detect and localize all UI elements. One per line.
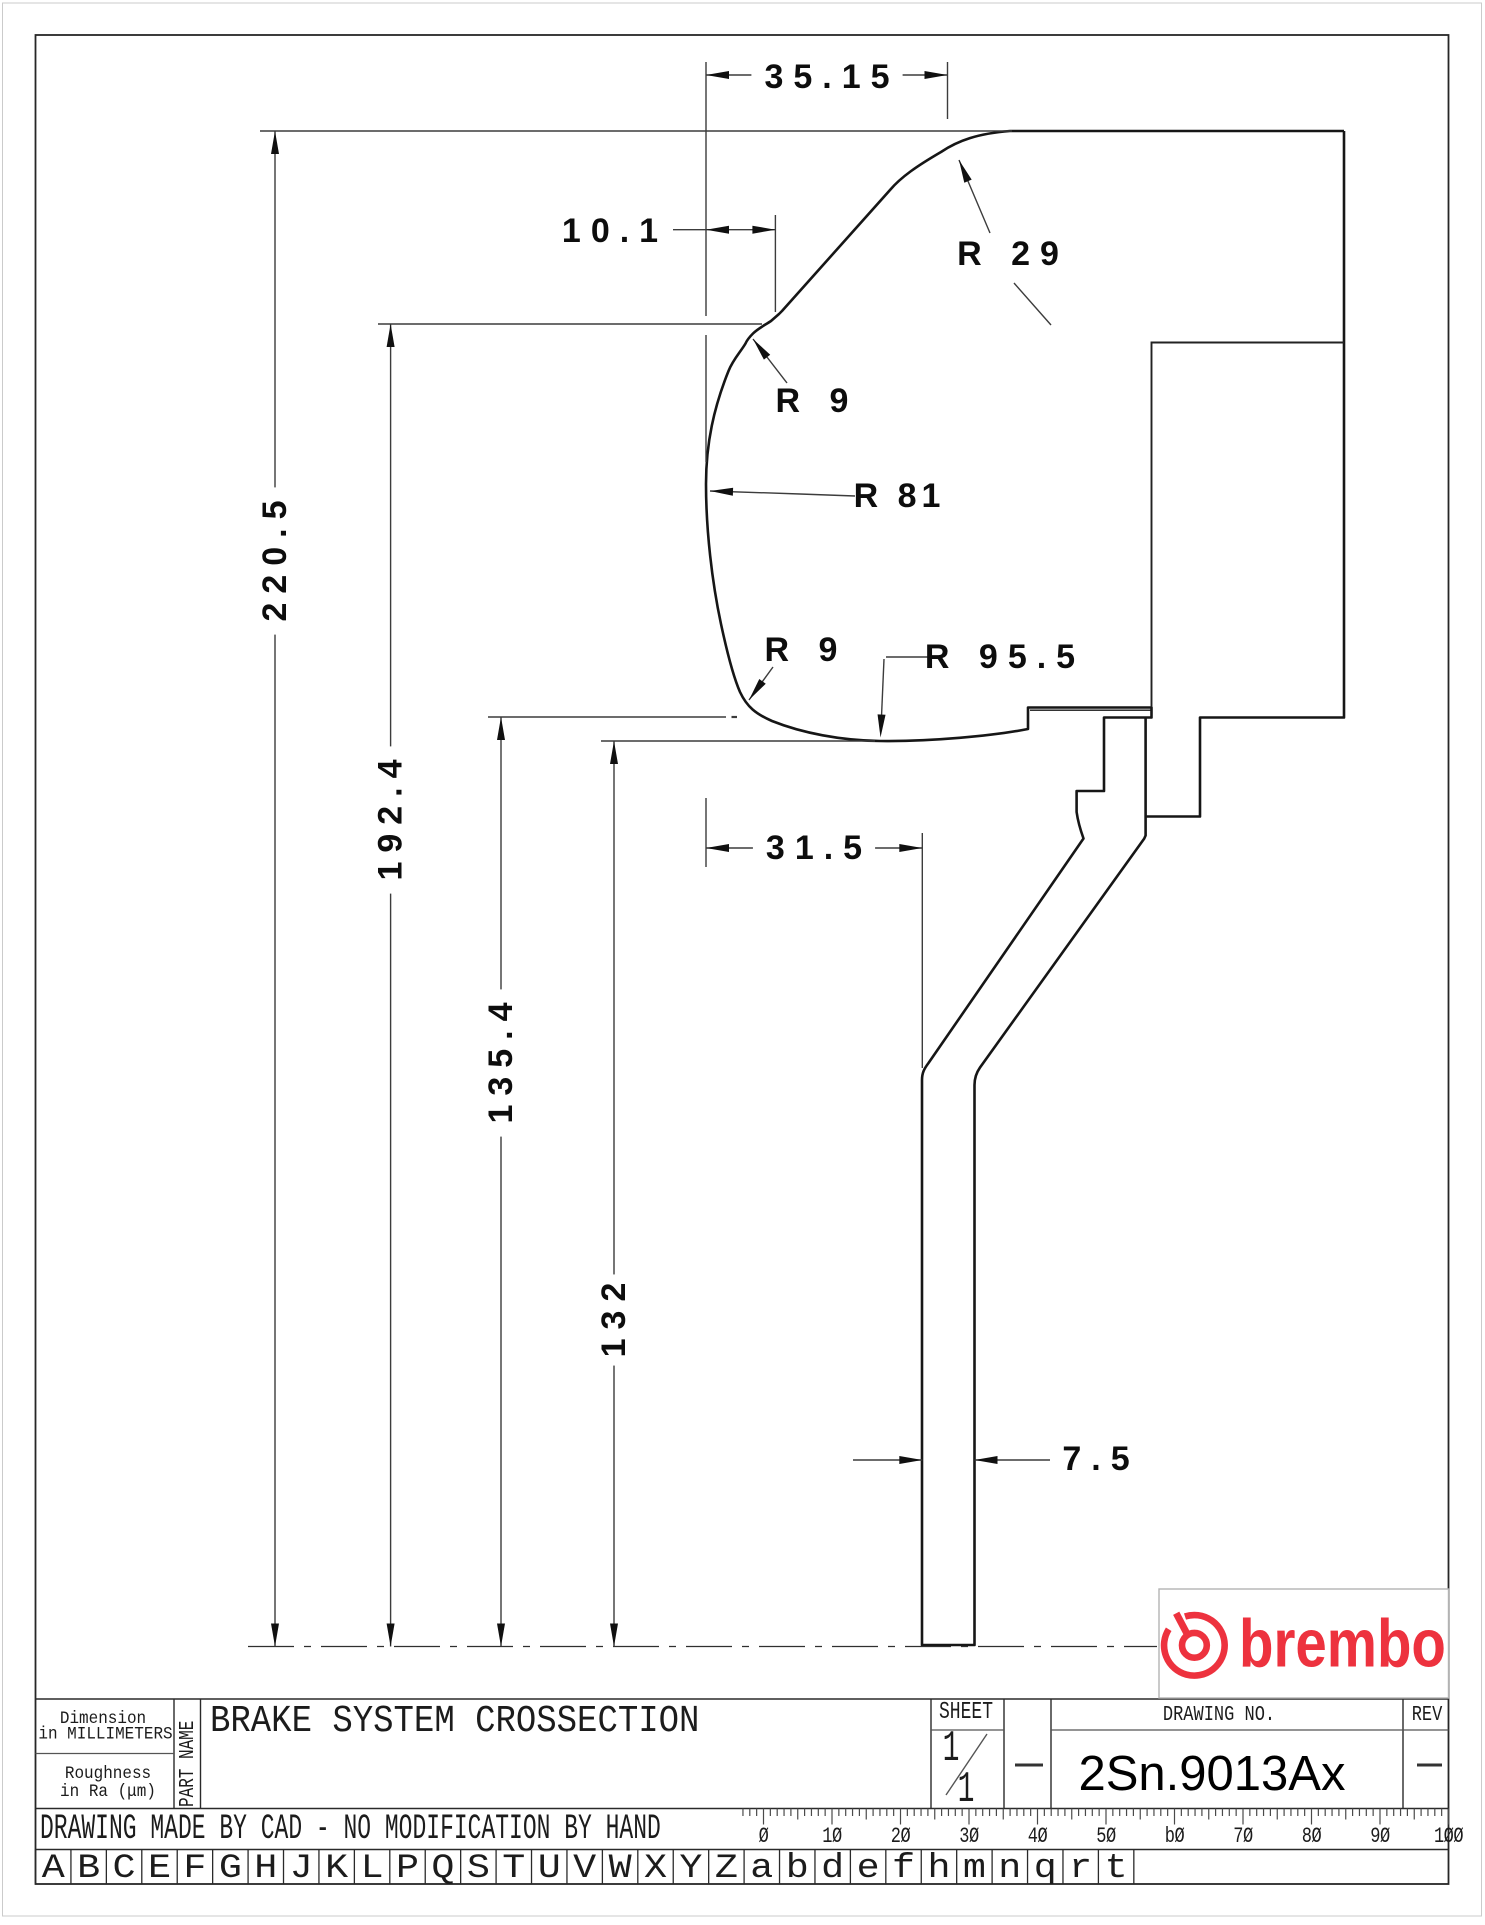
- svg-text:q: q: [1034, 1849, 1057, 1887]
- svg-text:1ØØ: 1ØØ: [1434, 1824, 1464, 1849]
- svg-text:Ø: Ø: [759, 1824, 769, 1849]
- svg-text:S: S: [467, 1849, 490, 1887]
- svg-text:t: t: [1105, 1849, 1128, 1887]
- svg-text:132: 132: [595, 1274, 633, 1358]
- svg-text:f: f: [892, 1849, 915, 1887]
- svg-text:X: X: [644, 1849, 667, 1887]
- svg-text:R 81: R 81: [854, 477, 946, 515]
- svg-text:r: r: [1069, 1849, 1092, 1887]
- svg-text:brembo: brembo: [1239, 1606, 1446, 1682]
- svg-text:8Ø: 8Ø: [1302, 1824, 1322, 1849]
- svg-text:1: 1: [958, 1765, 975, 1814]
- svg-text:SHEET: SHEET: [939, 1699, 993, 1726]
- svg-text:Roughness: Roughness: [65, 1764, 151, 1784]
- svg-text:R 29: R 29: [957, 235, 1069, 273]
- svg-text:PART NAME: PART NAME: [175, 1721, 200, 1807]
- svg-text:DRAWING NO.: DRAWING NO.: [1163, 1702, 1275, 1726]
- svg-text:T: T: [502, 1849, 525, 1887]
- svg-text:W: W: [609, 1849, 632, 1887]
- svg-text:R 9: R 9: [776, 382, 859, 420]
- svg-text:2Sn.9013Ax: 2Sn.9013Ax: [1079, 1747, 1346, 1801]
- svg-text:P: P: [396, 1849, 419, 1887]
- svg-text:1Ø: 1Ø: [822, 1824, 842, 1849]
- svg-text:Z: Z: [715, 1849, 738, 1887]
- svg-text:BRAKE SYSTEM CROSSECTION: BRAKE SYSTEM CROSSECTION: [210, 1699, 699, 1742]
- svg-text:b: b: [786, 1849, 809, 1887]
- svg-text:n: n: [998, 1849, 1021, 1887]
- svg-text:31.5: 31.5: [766, 829, 872, 867]
- svg-text:C: C: [113, 1849, 136, 1887]
- svg-text:9Ø: 9Ø: [1370, 1824, 1390, 1849]
- svg-text:in Ra (μm): in Ra (μm): [60, 1782, 156, 1802]
- svg-text:4Ø: 4Ø: [1028, 1824, 1048, 1849]
- svg-text:R 9: R 9: [765, 631, 848, 669]
- svg-text:7Ø: 7Ø: [1233, 1824, 1253, 1849]
- svg-text:2Ø: 2Ø: [891, 1824, 911, 1849]
- svg-text:R 95.5: R 95.5: [925, 638, 1085, 676]
- svg-text:bØ: bØ: [1165, 1824, 1185, 1849]
- svg-text:e: e: [857, 1849, 880, 1887]
- svg-text:A: A: [42, 1849, 65, 1887]
- svg-text:h: h: [927, 1849, 950, 1887]
- svg-text:192.4: 192.4: [372, 750, 410, 880]
- svg-text:3Ø: 3Ø: [959, 1824, 979, 1849]
- svg-text:d: d: [821, 1849, 844, 1887]
- svg-text:220.5: 220.5: [256, 491, 294, 621]
- svg-text:7.5: 7.5: [1062, 1440, 1139, 1478]
- svg-text:135.4: 135.4: [482, 993, 520, 1123]
- svg-text:m: m: [963, 1849, 986, 1887]
- svg-text:L: L: [361, 1849, 384, 1887]
- svg-text:DRAWING MADE BY CAD - NO MODIF: DRAWING MADE BY CAD - NO MODIFICATION BY…: [40, 1809, 661, 1849]
- svg-text:J: J: [290, 1849, 313, 1887]
- svg-text:B: B: [77, 1849, 100, 1887]
- svg-text:E: E: [148, 1849, 171, 1887]
- svg-text:REV: REV: [1412, 1702, 1443, 1726]
- svg-text:a: a: [750, 1849, 773, 1887]
- svg-text:G: G: [219, 1849, 242, 1887]
- svg-text:35.15: 35.15: [764, 58, 899, 96]
- svg-text:in MILLIMETERS: in MILLIMETERS: [38, 1725, 172, 1745]
- svg-text:Y: Y: [679, 1849, 702, 1887]
- svg-text:10.1: 10.1: [562, 212, 668, 250]
- svg-text:Q: Q: [431, 1849, 454, 1887]
- svg-text:K: K: [325, 1849, 348, 1887]
- svg-text:H: H: [254, 1849, 277, 1887]
- svg-text:5Ø: 5Ø: [1096, 1824, 1116, 1849]
- svg-text:F: F: [183, 1849, 206, 1887]
- svg-text:V: V: [573, 1849, 596, 1887]
- svg-text:U: U: [538, 1849, 561, 1887]
